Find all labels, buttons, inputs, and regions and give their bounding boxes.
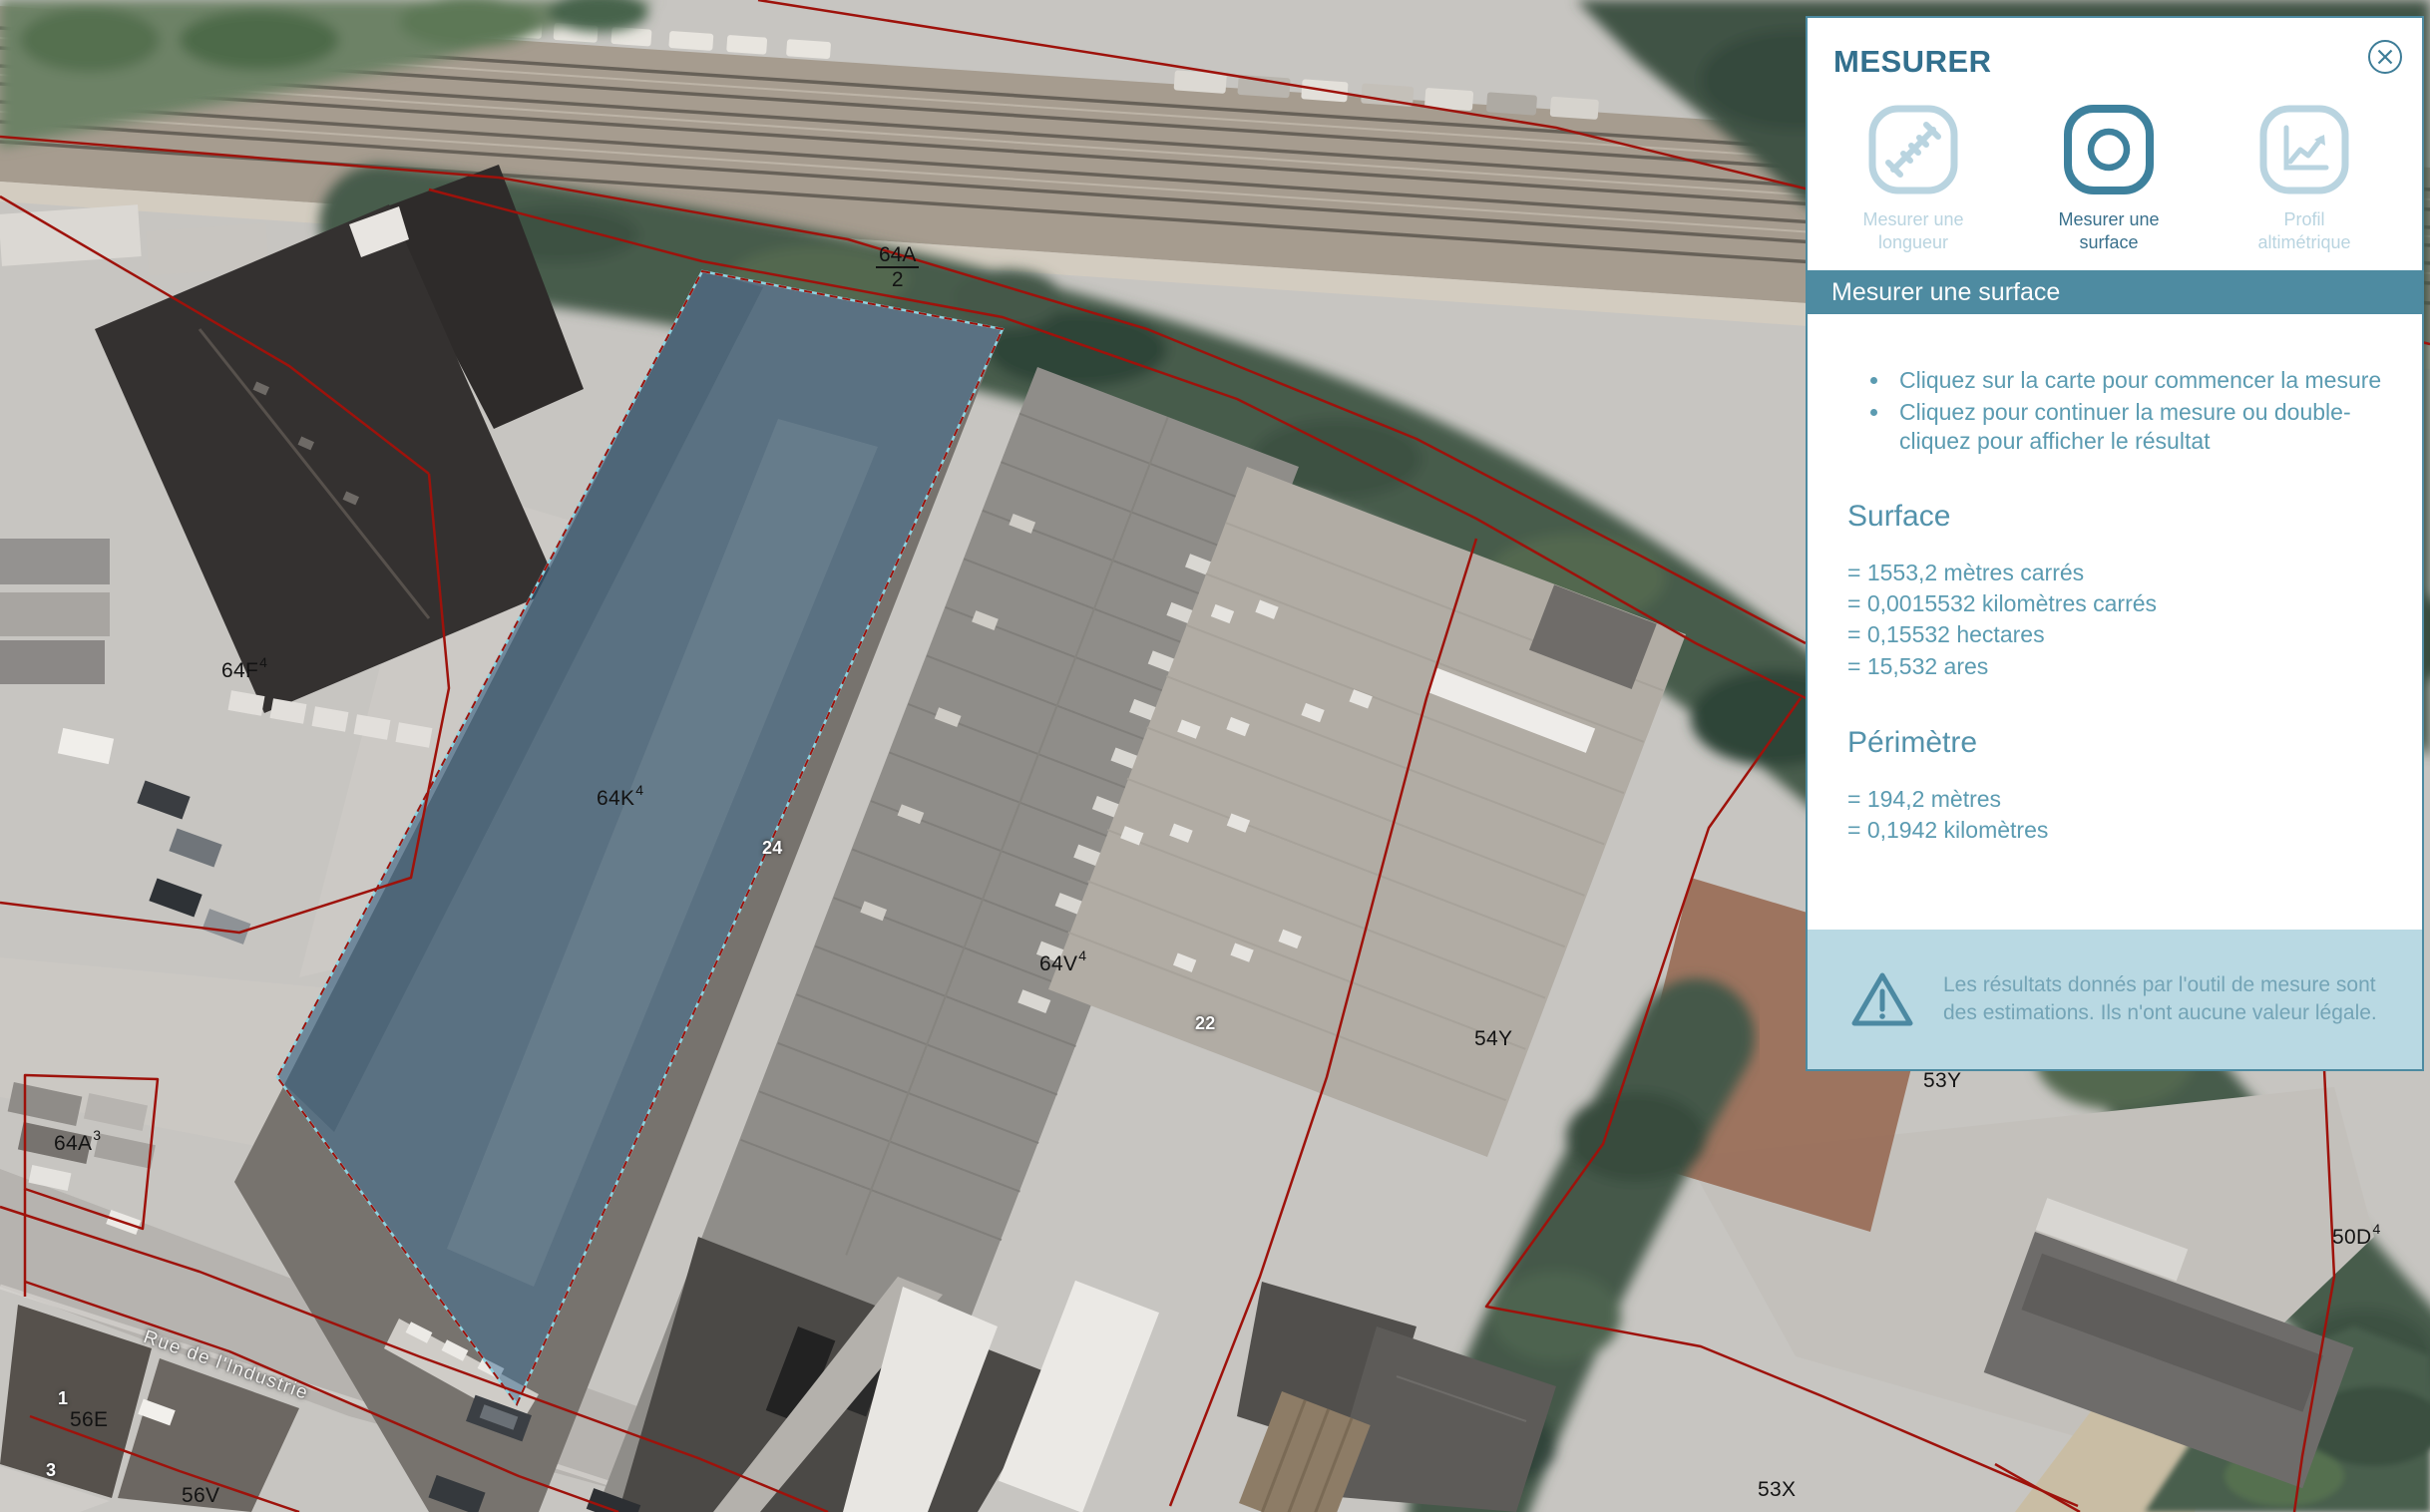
instructions-list: Cliquez sur la carte pour commencer la m… xyxy=(1861,366,2392,456)
profile-chart-icon xyxy=(2258,104,2350,195)
surface-value: = 0,0015532 kilomètres carrés xyxy=(1847,588,2392,619)
panel-title: MESURER xyxy=(1833,44,2396,80)
perimeter-values: = 194,2 mètres = 0,1942 kilomètres xyxy=(1847,784,2392,846)
parcel-label-56e: 56E xyxy=(70,1408,108,1432)
parcel-label-64a3: 64A3 xyxy=(54,1129,100,1156)
parcel-label-53x: 53X xyxy=(1758,1478,1796,1502)
parcel-label-54y: 54Y xyxy=(1474,1027,1512,1051)
parcel-label-64a2: 64A 2 xyxy=(876,244,919,290)
parcel-label-64f4: 64F4 xyxy=(221,656,266,683)
perimeter-value: = 194,2 mètres xyxy=(1847,784,2392,815)
house-number-24: 24 xyxy=(762,838,783,859)
close-icon xyxy=(2366,38,2404,76)
disclaimer-footer: Les résultats donnés par l'outil de mesu… xyxy=(1808,930,2422,1069)
surface-value: = 15,532 ares xyxy=(1847,651,2392,682)
disclaimer-text: Les résultats donnés par l'outil de mesu… xyxy=(1943,971,2392,1026)
house-number-22: 22 xyxy=(1195,1013,1216,1034)
section-header: Mesurer une surface xyxy=(1808,270,2422,314)
house-number-1: 1 xyxy=(58,1388,68,1409)
surface-value: = 0,15532 hectares xyxy=(1847,619,2392,650)
surface-values: = 1553,2 mètres carrés = 0,0015532 kilom… xyxy=(1847,558,2392,681)
tool-measure-length[interactable]: Mesurer une longueur xyxy=(1816,104,2011,254)
perimeter-value: = 0,1942 kilomètres xyxy=(1847,815,2392,846)
parcel-label-64v4: 64V4 xyxy=(1039,949,1085,976)
instruction-item: Cliquez pour continuer la mesure ou doub… xyxy=(1891,398,2392,457)
surface-circle-icon xyxy=(2063,104,2155,195)
ruler-icon xyxy=(1867,104,1959,195)
surface-heading: Surface xyxy=(1847,500,2392,534)
house-number-3: 3 xyxy=(46,1460,56,1481)
surface-value: = 1553,2 mètres carrés xyxy=(1847,558,2392,588)
tool-measure-surface[interactable]: Mesurer une surface xyxy=(2011,104,2207,254)
measure-panel: MESURER xyxy=(1806,16,2424,1071)
parcel-label-53y: 53Y xyxy=(1923,1069,1961,1093)
tool-selector: Mesurer une longueur Mesurer une surface xyxy=(1808,104,2422,254)
parcel-label-64k4: 64K4 xyxy=(597,784,642,811)
instruction-item: Cliquez sur la carte pour commencer la m… xyxy=(1891,366,2392,395)
perimeter-heading: Périmètre xyxy=(1847,726,2392,760)
parcel-label-50d4: 50D4 xyxy=(2332,1223,2380,1250)
tool-elevation-profile[interactable]: Profil altimétrique xyxy=(2207,104,2402,254)
parcel-label-56v: 56V xyxy=(182,1484,219,1508)
close-button[interactable] xyxy=(2366,38,2404,76)
map-viewport[interactable]: 64A 2 64F4 64K4 64V4 54Y 53Y 53X 50D4 64… xyxy=(0,0,2430,1512)
warning-icon xyxy=(1849,969,1915,1029)
